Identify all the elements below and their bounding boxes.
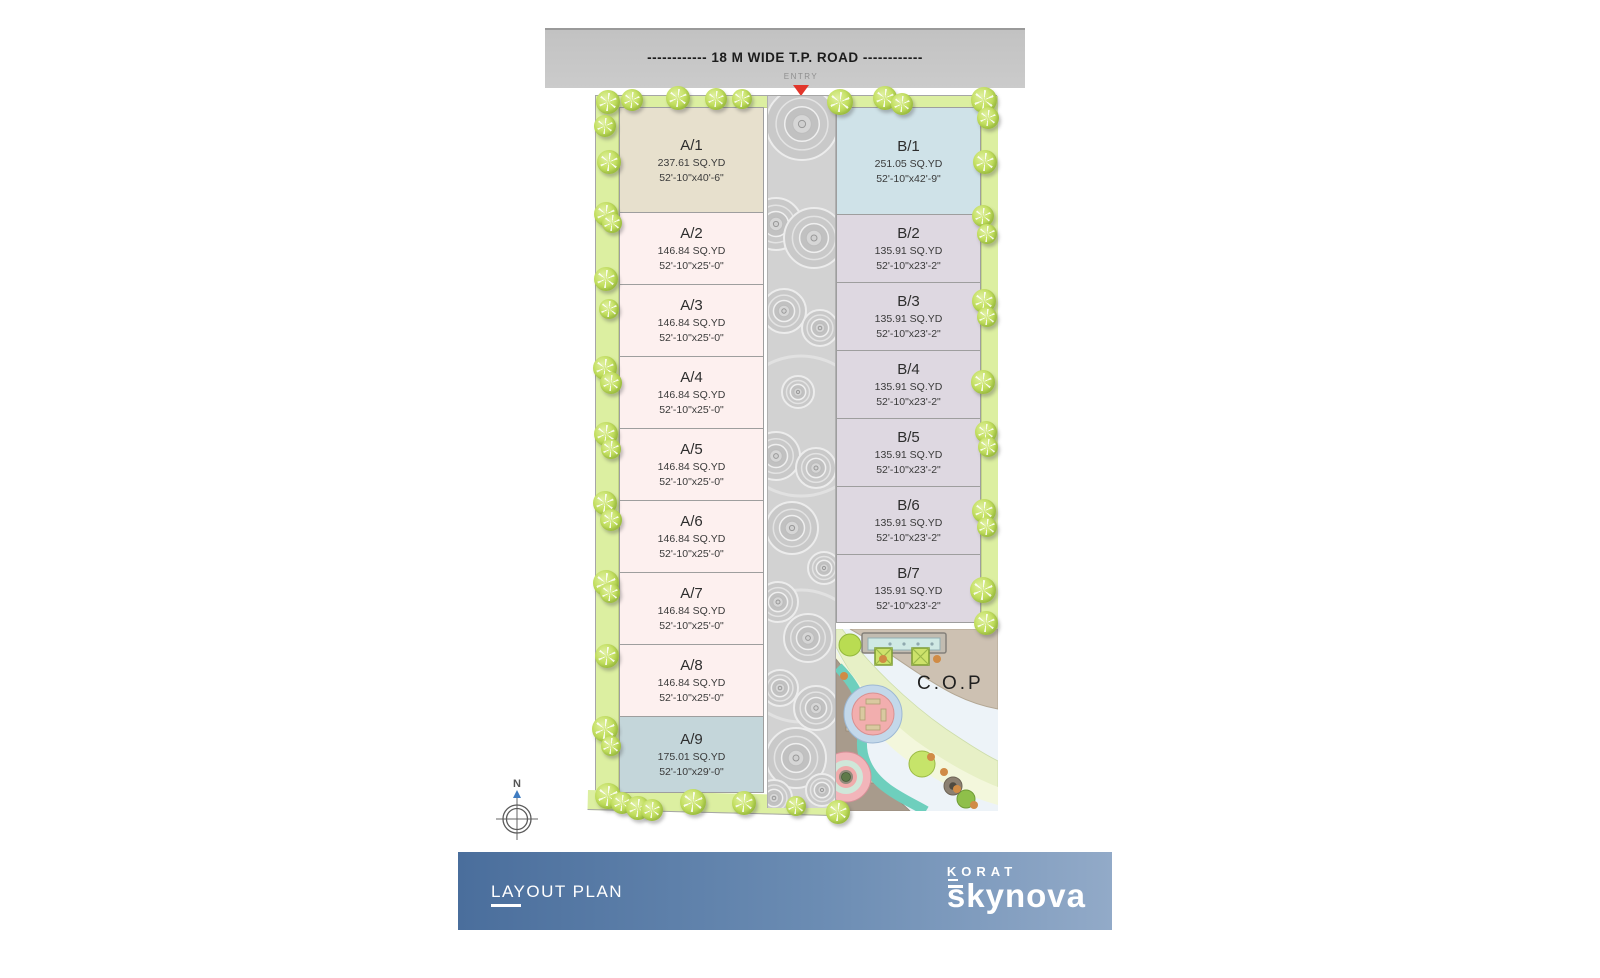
plot-column-a: A/1 237.61 SQ.YD 52'-10"x40'-6" A/2 146.… <box>619 108 764 793</box>
north-compass: N <box>494 776 540 847</box>
tree-icon <box>786 796 806 816</box>
tree-icon <box>827 89 853 115</box>
plot-label: A/9 <box>680 731 703 748</box>
plot-label: B/6 <box>897 497 920 514</box>
plot: A/4 146.84 SQ.YD 52'-10"x25'-0" <box>619 356 764 429</box>
plot-label: A/2 <box>680 225 703 242</box>
plot-label: A/4 <box>680 369 703 386</box>
cop-garden-art <box>836 629 998 811</box>
plot-label: B/7 <box>897 565 920 582</box>
plot: A/9 175.01 SQ.YD 52'-10"x29'-0" <box>619 716 764 793</box>
plot-label: A/3 <box>680 297 703 314</box>
plot-label: B/3 <box>897 293 920 310</box>
tree-icon <box>680 789 706 815</box>
entry-label: ENTRY <box>784 72 818 81</box>
tree-icon <box>974 611 998 635</box>
plot-area: 251.05 SQ.YD <box>875 158 943 170</box>
logo-bar <box>948 879 958 881</box>
plot-size: 52'-10"x23'-2" <box>876 396 941 408</box>
cop-label: C.O.P <box>917 673 984 695</box>
tree-icon <box>600 509 622 531</box>
logo-bar <box>948 885 963 888</box>
plot-size: 52'-10"x23'-2" <box>876 532 941 544</box>
cop-area: C.O.P <box>836 629 998 811</box>
plot-area: 146.84 SQ.YD <box>658 533 726 545</box>
plot-area: 146.84 SQ.YD <box>658 605 726 617</box>
plot-size: 52'-10"x23'-2" <box>876 260 941 272</box>
plot: A/5 146.84 SQ.YD 52'-10"x25'-0" <box>619 428 764 501</box>
plot: B/4 135.91 SQ.YD 52'-10"x23'-2" <box>836 350 981 419</box>
plot-label: A/6 <box>680 513 703 530</box>
plot: B/5 135.91 SQ.YD 52'-10"x23'-2" <box>836 418 981 487</box>
plot: B/2 135.91 SQ.YD 52'-10"x23'-2" <box>836 214 981 283</box>
plot-area: 135.91 SQ.YD <box>875 449 943 461</box>
plot-size: 52'-10"x23'-2" <box>876 600 941 612</box>
plot: B/3 135.91 SQ.YD 52'-10"x23'-2" <box>836 282 981 351</box>
tree-icon <box>594 267 618 291</box>
plot-size: 52'-10"x23'-2" <box>876 464 941 476</box>
site-plan: A/1 237.61 SQ.YD 52'-10"x40'-6" A/2 146.… <box>595 95 997 810</box>
tree-icon <box>977 107 999 129</box>
plot-size: 52'-10"x25'-0" <box>659 620 724 632</box>
tree-icon <box>977 307 997 327</box>
tree-icon <box>601 439 621 459</box>
green-border-right <box>981 96 998 629</box>
tree-icon <box>977 224 997 244</box>
plot-area: 135.91 SQ.YD <box>875 381 943 393</box>
plot-label: A/1 <box>680 137 703 154</box>
plot-size: 52'-10"x40'-6" <box>659 172 724 184</box>
tree-icon <box>971 370 995 394</box>
plot: A/8 146.84 SQ.YD 52'-10"x25'-0" <box>619 644 764 717</box>
plot-area: 146.84 SQ.YD <box>658 461 726 473</box>
plot-area: 135.91 SQ.YD <box>875 313 943 325</box>
tp-road-label: ------------ 18 M WIDE T.P. ROAD -------… <box>647 50 923 65</box>
plot: A/1 237.61 SQ.YD 52'-10"x40'-6" <box>619 107 764 213</box>
tree-icon <box>601 736 621 756</box>
tree-icon <box>602 213 622 233</box>
plot-size: 52'-10"x23'-2" <box>876 328 941 340</box>
plot-label: A/8 <box>680 657 703 674</box>
footer-title-underline <box>491 904 521 907</box>
plot-area: 146.84 SQ.YD <box>658 677 726 689</box>
plot-label: A/7 <box>680 585 703 602</box>
plot-column-b: B/1 251.05 SQ.YD 52'-10"x42'-9" B/2 135.… <box>836 108 981 623</box>
plot-size: 52'-10"x25'-0" <box>659 332 724 344</box>
footer-banner: LAYOUT PLAN KORAT skynova <box>458 852 1112 930</box>
entry-marker: ENTRY <box>766 66 836 96</box>
plot: A/2 146.84 SQ.YD 52'-10"x25'-0" <box>619 212 764 285</box>
plot: B/1 251.05 SQ.YD 52'-10"x42'-9" <box>836 107 981 215</box>
plot-label: B/2 <box>897 225 920 242</box>
tree-icon <box>600 372 622 394</box>
tree-icon <box>970 577 996 603</box>
plot-area: 237.61 SQ.YD <box>658 157 726 169</box>
plot-area: 175.01 SQ.YD <box>658 751 726 763</box>
plot-size: 52'-10"x25'-0" <box>659 548 724 560</box>
plot: A/7 146.84 SQ.YD 52'-10"x25'-0" <box>619 572 764 645</box>
tree-icon <box>600 583 620 603</box>
tree-icon <box>594 115 616 137</box>
plot-area: 135.91 SQ.YD <box>875 585 943 597</box>
compass-north-label: N <box>513 778 521 790</box>
tree-icon <box>595 644 619 668</box>
plot-label: B/5 <box>897 429 920 446</box>
tree-icon <box>973 150 997 174</box>
tree-icon <box>641 799 663 821</box>
footer-title: LAYOUT PLAN <box>491 882 623 902</box>
plot-size: 52'-10"x42'-9" <box>876 173 941 185</box>
tree-icon <box>891 93 913 115</box>
layout-plan-canvas: ------------ 18 M WIDE T.P. ROAD -------… <box>0 0 1600 978</box>
plot-area: 146.84 SQ.YD <box>658 389 726 401</box>
tree-icon <box>621 89 643 111</box>
plot: B/6 135.91 SQ.YD 52'-10"x23'-2" <box>836 486 981 555</box>
tree-icon <box>599 299 619 319</box>
plot-size: 52'-10"x29'-0" <box>659 766 724 778</box>
tree-icon <box>977 517 997 537</box>
tree-icon <box>597 150 621 174</box>
plot-size: 52'-10"x25'-0" <box>659 692 724 704</box>
plot-size: 52'-10"x25'-0" <box>659 404 724 416</box>
tree-icon <box>666 86 690 110</box>
plot-size: 52'-10"x25'-0" <box>659 260 724 272</box>
plot-label: B/1 <box>897 138 920 155</box>
tree-icon <box>705 88 727 110</box>
plot: A/6 146.84 SQ.YD 52'-10"x25'-0" <box>619 500 764 573</box>
plot-size: 52'-10"x25'-0" <box>659 476 724 488</box>
plot-area: 146.84 SQ.YD <box>658 245 726 257</box>
compass-needle-icon <box>513 790 521 798</box>
plot-area: 135.91 SQ.YD <box>875 245 943 257</box>
plot-area: 146.84 SQ.YD <box>658 317 726 329</box>
tree-icon <box>732 791 756 815</box>
tree-icon <box>978 437 998 457</box>
plot: A/3 146.84 SQ.YD 52'-10"x25'-0" <box>619 284 764 357</box>
brand-logo: KORAT skynova <box>947 864 1086 914</box>
plot-area: 135.91 SQ.YD <box>875 517 943 529</box>
tree-icon <box>826 800 850 824</box>
plot: B/7 135.91 SQ.YD 52'-10"x23'-2" <box>836 554 981 623</box>
tree-icon <box>732 89 752 109</box>
brand-bottom-text: skynova <box>947 879 1086 914</box>
tree-icon <box>596 90 620 114</box>
plot-label: A/5 <box>680 441 703 458</box>
internal-road <box>767 96 836 808</box>
plot-label: B/4 <box>897 361 920 378</box>
